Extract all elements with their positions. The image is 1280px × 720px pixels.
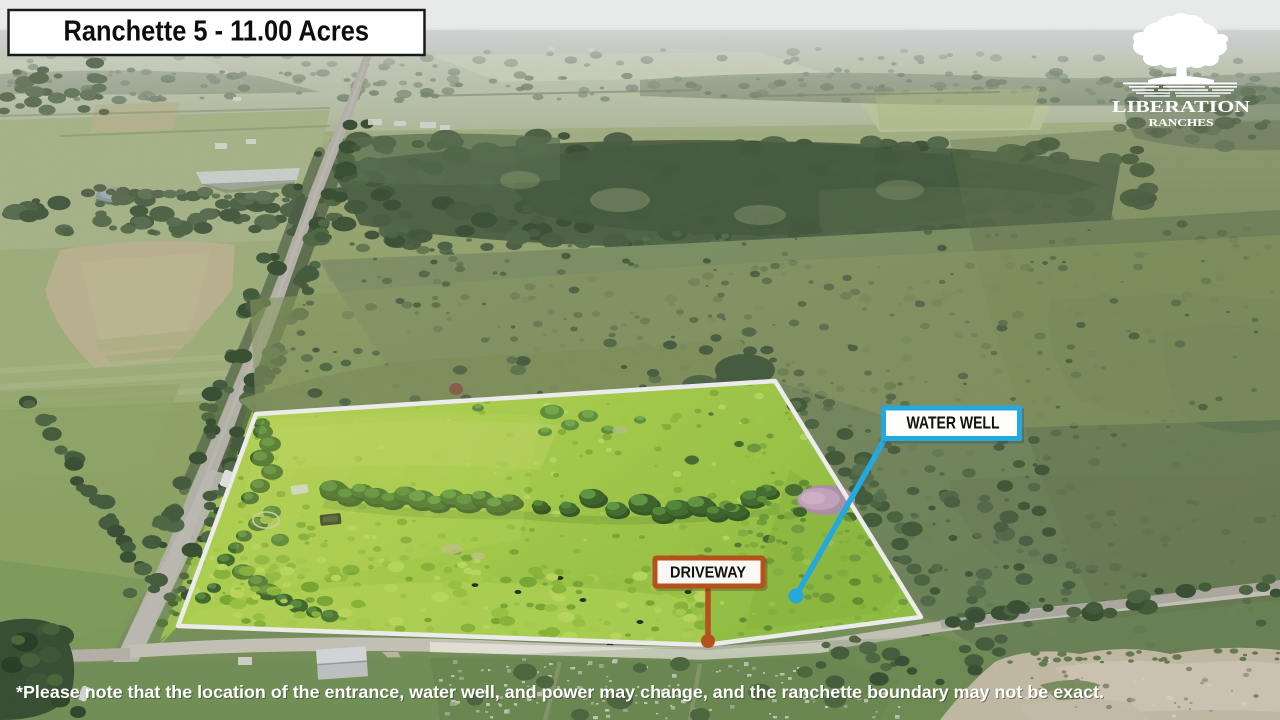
svg-text:WATER WELL: WATER WELL xyxy=(907,413,1000,433)
svg-text:*Please note that the location: *Please note that the location of the en… xyxy=(16,682,1104,702)
svg-text:RANCHES: RANCHES xyxy=(1149,117,1214,129)
svg-text:LIBERATION: LIBERATION xyxy=(1112,97,1250,116)
svg-text:DRIVEWAY: DRIVEWAY xyxy=(670,565,746,582)
svg-text:Ranchette 5 - 11.00 Acres: Ranchette 5 - 11.00 Acres xyxy=(64,16,370,48)
